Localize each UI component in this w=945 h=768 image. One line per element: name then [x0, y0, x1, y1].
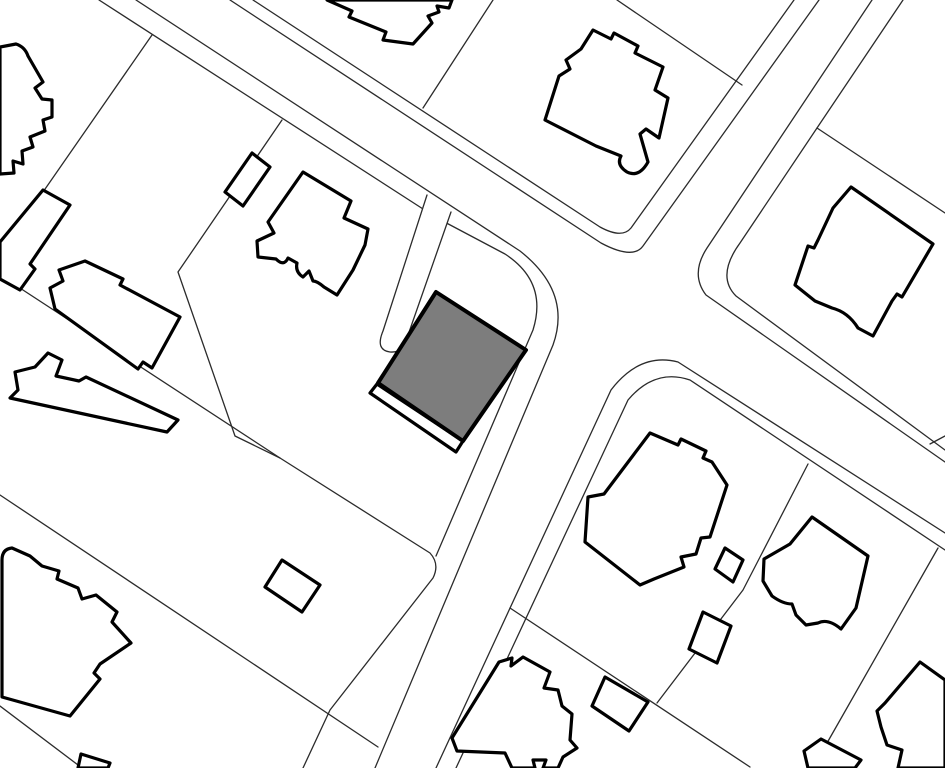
parcel-map-canvas[interactable]	[0, 0, 945, 768]
map-viewport[interactable]	[0, 0, 945, 768]
